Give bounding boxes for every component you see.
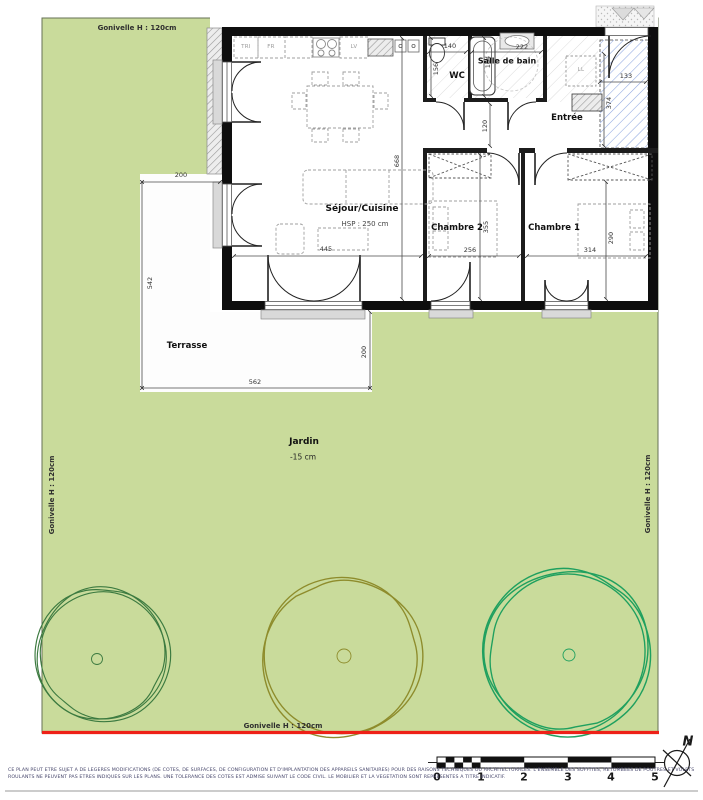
appliance-lv-label: LV [351, 44, 358, 50]
dim-terrasse-top: 200 [175, 171, 187, 179]
dim-sejour-width: 445 [320, 245, 332, 253]
appliance-ll-label: LL [578, 67, 585, 73]
disclaimer-line1: CE PLAN PEUT ETRE SUJET A DE LEGERES MOD… [8, 768, 700, 774]
dim-sejour-height: 668 [393, 155, 401, 167]
dim-wc-height: 156 [432, 63, 440, 75]
garden-label: Jardin [289, 437, 319, 447]
appliance-fr-label: FR [267, 44, 275, 50]
room-label-salle-de-bain: Salle de bain [478, 57, 536, 66]
room-label-terrasse: Terrasse [167, 341, 207, 351]
garden-level-label: -15 cm [290, 453, 316, 462]
dim-chambre2-width: 256 [464, 246, 476, 254]
fence-label-bottom: Gonivelle H : 120cm [244, 722, 323, 730]
scale-bar [428, 757, 664, 768]
entry-access-zone [600, 40, 648, 148]
floor-plan-page: Gonivelle H : 120cm Gonivelle H : 120cm … [0, 0, 703, 800]
ceiling-height-label: HSP : 250 cm [342, 220, 389, 228]
dim-sdb-width: 222 [516, 43, 528, 51]
room-label-chambre2: Chambre 2 [431, 223, 483, 233]
cabinet-icon [572, 94, 602, 111]
disclaimer-line2: ROULANTS NE PEUVENT PAS ETRES INDIQUES S… [8, 775, 700, 781]
sink-drainer-icon [368, 39, 393, 56]
dim-chambre1-width: 314 [584, 246, 596, 254]
room-label-wc: WC [449, 71, 465, 81]
appliance-tri-label: TRI [241, 44, 251, 50]
room-label-entree: Entrée [551, 113, 583, 123]
fence-label-right: Gonivelle H : 120cm [644, 455, 652, 534]
dim-hall-width: 120 [481, 120, 489, 132]
dim-terrasse-left: 542 [146, 277, 154, 289]
dim-terrasse-right: 200 [360, 346, 368, 358]
room-label-sejour: Séjour/Cuisine [325, 204, 398, 214]
fence-label-left: Gonivelle H : 120cm [48, 456, 56, 535]
floor-plan-drawing [0, 0, 703, 800]
dim-chambre1-height: 290 [607, 232, 615, 244]
room-label-chambre1: Chambre 1 [528, 223, 580, 233]
fence-label-top: Gonivelle H : 120cm [98, 24, 177, 32]
north-label: N [683, 735, 694, 750]
dim-entree-width: 133 [620, 72, 632, 80]
dim-wc-width: 140 [444, 42, 456, 50]
dim-chambre2-height: 355 [482, 221, 490, 233]
dim-terrasse-bottom: 562 [249, 378, 261, 386]
dim-entree-height: 374 [605, 97, 613, 109]
